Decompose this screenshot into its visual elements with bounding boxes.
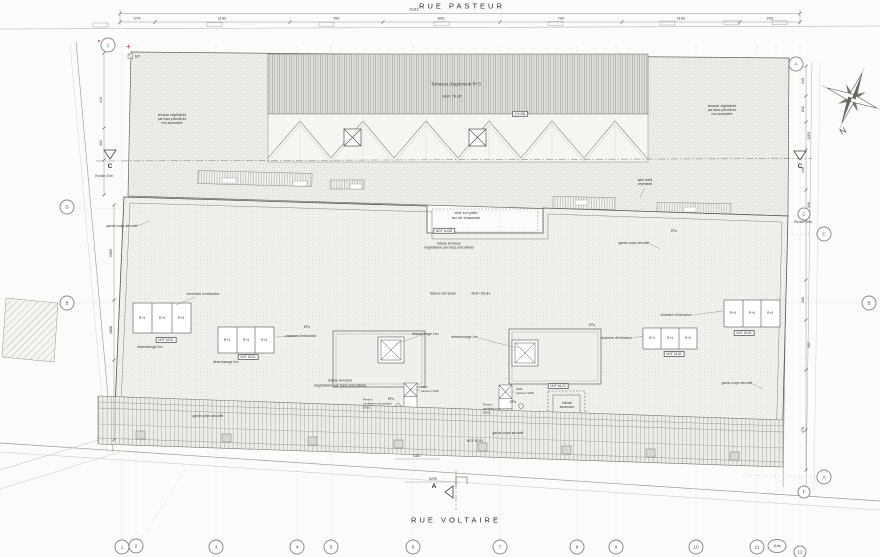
pentes-ev02: Pentes ventilation secondaire EV02 <box>483 403 512 414</box>
desenfumage-1m-a: désenfumage 1m² <box>412 332 439 336</box>
section-c-left: C <box>108 163 113 171</box>
grid-bubble-2: 2 <box>129 539 144 554</box>
green-note-left: terrasse végétalisée par bacs précultivé… <box>158 113 187 125</box>
ngf-balcony: NGF 63.81 <box>467 439 483 443</box>
r4-d3: R+4 <box>685 336 691 340</box>
grid-bubble-10: 10 <box>689 540 704 555</box>
eps-5: EPs <box>510 400 516 404</box>
dim-left-1: 443 <box>99 97 103 103</box>
grid-bubble-d: D <box>60 200 75 215</box>
chambre-label-c: chambre d'extraction <box>660 313 691 317</box>
grid-bubble-b-left: B <box>60 296 75 311</box>
dim-left-2: 302 <box>99 140 103 146</box>
dim-right-5: 346 <box>807 202 811 208</box>
garde-corps-5: garde-corps sécurité <box>193 414 224 418</box>
chambre-label-d: chambre d'extraction <box>601 336 632 340</box>
patio-roof-note: toiture terrasse végétalisée par bacs pr… <box>424 242 474 251</box>
dim-top-7: 293 <box>767 16 774 21</box>
grid-bubble-9: 9 <box>609 540 624 555</box>
dim-top-total: 6183 <box>410 7 419 12</box>
grid-bubble-left-1: 1 <box>101 38 116 53</box>
roof-green-note: toiture terrasse végétalisée par bacs pr… <box>314 378 366 387</box>
dim-right-7: 162 <box>807 342 811 348</box>
ngf-b: NGF 63.81 <box>238 354 259 360</box>
roof-center-ngf: NGF 63.81 <box>471 292 490 297</box>
dim-left-4: 1888 <box>109 326 113 334</box>
r4-a3: R+4 <box>178 316 184 320</box>
r4-b1: R+4 <box>224 338 230 342</box>
street-name-bottom: RUE VOLTAIRE <box>411 515 501 524</box>
grid-bubble-7: 7 <box>493 540 508 555</box>
eps-4: EPs <box>388 397 394 401</box>
r4-b3: R+4 <box>261 338 267 342</box>
r4-d1: R+4 <box>649 336 655 340</box>
r4-a1: R+4 <box>139 316 145 320</box>
ngf-c: NGF 63.81 <box>734 330 755 336</box>
neighbour-building <box>2 298 58 362</box>
vmc-label-2: VMC caisson VMC <box>516 388 534 396</box>
dim-bottom-2: 5290 <box>429 477 437 481</box>
ngf-d: NGF 63.81 <box>664 351 685 357</box>
grid-bubble-6: 6 <box>406 540 421 555</box>
grid-bubble-4: 4 <box>290 540 305 555</box>
r4-b2: R+4 <box>243 338 249 342</box>
desenfumage-1m-b: désenfumage 1m² <box>451 335 478 339</box>
grid-bubble-1: 1 <box>115 540 130 555</box>
chambre-label-b: chambre d'extraction <box>285 334 316 338</box>
patio-ngf: NGF 64.65 <box>433 228 455 234</box>
dim-top-5: 790 <box>558 16 565 21</box>
grid-bubble-b-right: B <box>862 296 877 311</box>
grid-bubble-c-2: C <box>817 227 832 242</box>
grid-bubble-f: F <box>798 486 811 499</box>
green-note-right: terrasse végétalisée par bacs précultivé… <box>708 104 737 116</box>
section-a: A <box>432 483 437 491</box>
grid-bubble-a-topright: A <box>789 57 804 72</box>
dim-top-3: 760 <box>333 16 340 21</box>
desenfumage-2m-a: désenfumage 2m² <box>137 345 163 349</box>
r4-d2: R+4 <box>667 336 673 340</box>
ronde-left: Ronde 20m <box>95 174 113 178</box>
dim-right-1: 440 <box>801 78 805 84</box>
section-c-right: C <box>798 163 803 171</box>
dim-top-6: 1192 <box>677 16 686 21</box>
garde-corps-2: garde-corps sécurité <box>619 241 650 245</box>
grid-bubble-11bis: 11bis <box>768 539 787 553</box>
r4-a2: R+4 <box>159 316 165 320</box>
desenfumage-2m-b: désenfumage 2m² <box>213 360 239 364</box>
garde-corps-1: garde-corps sécurité <box>107 224 138 228</box>
agrement-ngf: NGF 70.87 <box>442 94 462 99</box>
grid-bubble-c-1: C <box>798 208 811 221</box>
r4-c2: R+4 <box>749 311 755 315</box>
eps-1: EPs <box>671 229 677 233</box>
street-parking-marks <box>93 21 787 27</box>
dim-right-2: 842 <box>801 106 805 112</box>
dim-right-6: 330 <box>801 297 805 303</box>
ngf-a: NGF 63.81 <box>156 337 177 343</box>
grid-bubble-12: 12 <box>794 546 807 557</box>
dim-top-2: 1192 <box>218 16 227 21</box>
patio-void-label: vide sur patio rez de chaussée <box>452 211 481 221</box>
grid-bubble-3: 3 <box>209 540 224 555</box>
pare-soleil-label: pare soleil végétalisé <box>638 178 653 186</box>
r4-c3: R+4 <box>767 311 773 315</box>
ronde-right: Ronde 20m <box>794 220 812 224</box>
dim-top-1: 279 <box>134 16 141 21</box>
roof-plan-sheet: RUE PASTEUR RUE VOLTAIRE 6183 279 1192 7… <box>0 0 880 557</box>
upper-terrace <box>128 52 789 216</box>
cheminee-label: cheminée d'extraction <box>187 292 220 296</box>
dim-top-4: 843 <box>438 16 445 21</box>
eps-2: EPs <box>304 325 310 329</box>
vmc-label-1: VMC caisson VMC <box>421 386 439 394</box>
dim-bottom-1: 5387 <box>413 454 421 458</box>
ep-mark <box>128 54 133 59</box>
edicule-ngf: NGF 66.22 <box>548 383 569 389</box>
dim-right-8: 478 <box>801 427 805 433</box>
street-name-top: RUE PASTEUR <box>419 1 505 10</box>
dim-left-3: 2689 <box>109 249 113 257</box>
agrement-level: (+4.05) <box>512 111 528 117</box>
r4-c1: R+4 <box>730 311 736 315</box>
agrement-title: Terrasse d'agrément R+3 <box>431 81 480 87</box>
garde-corps-4: garde-corps sécurité <box>493 431 524 435</box>
garde-corps-3: garde-corps sécurité <box>722 381 753 385</box>
edicule-label: édicule ascenseur <box>560 401 575 409</box>
ep-label: EP <box>135 55 140 60</box>
grid-bubble-a-bottomright: A <box>817 470 832 485</box>
eps-3: EPs <box>589 323 595 327</box>
grid-bubble-8: 8 <box>570 540 585 555</box>
dim-right-3: 1118 <box>807 132 811 139</box>
grid-bubble-11: 11 <box>750 540 765 555</box>
grid-bubble-5: 5 <box>324 540 339 555</box>
roof-center-label: toiture terrasse <box>430 292 456 297</box>
